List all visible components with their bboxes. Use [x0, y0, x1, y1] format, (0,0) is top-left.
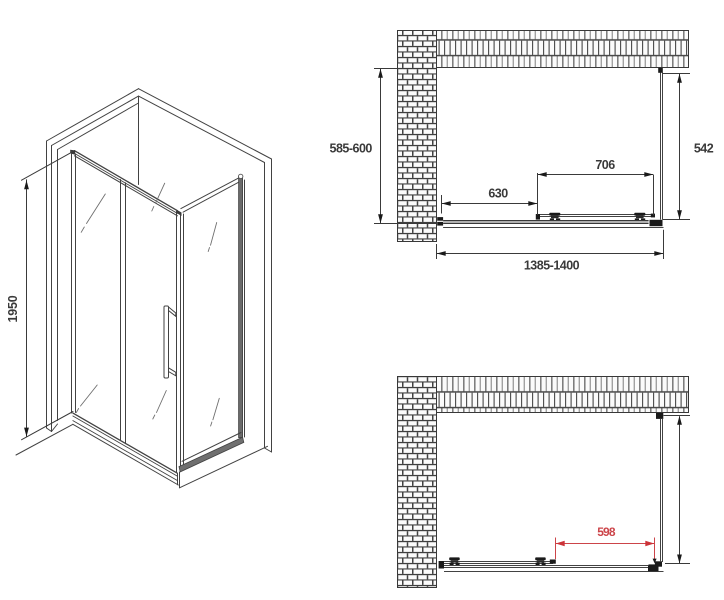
- svg-text:1950: 1950: [6, 295, 20, 322]
- svg-text:585-600: 585-600: [330, 142, 373, 156]
- svg-text:1385-1400: 1385-1400: [524, 259, 580, 273]
- svg-text:542: 542: [694, 142, 714, 156]
- svg-text:598: 598: [597, 525, 616, 539]
- svg-text:630: 630: [488, 187, 508, 201]
- svg-text:706: 706: [595, 158, 615, 172]
